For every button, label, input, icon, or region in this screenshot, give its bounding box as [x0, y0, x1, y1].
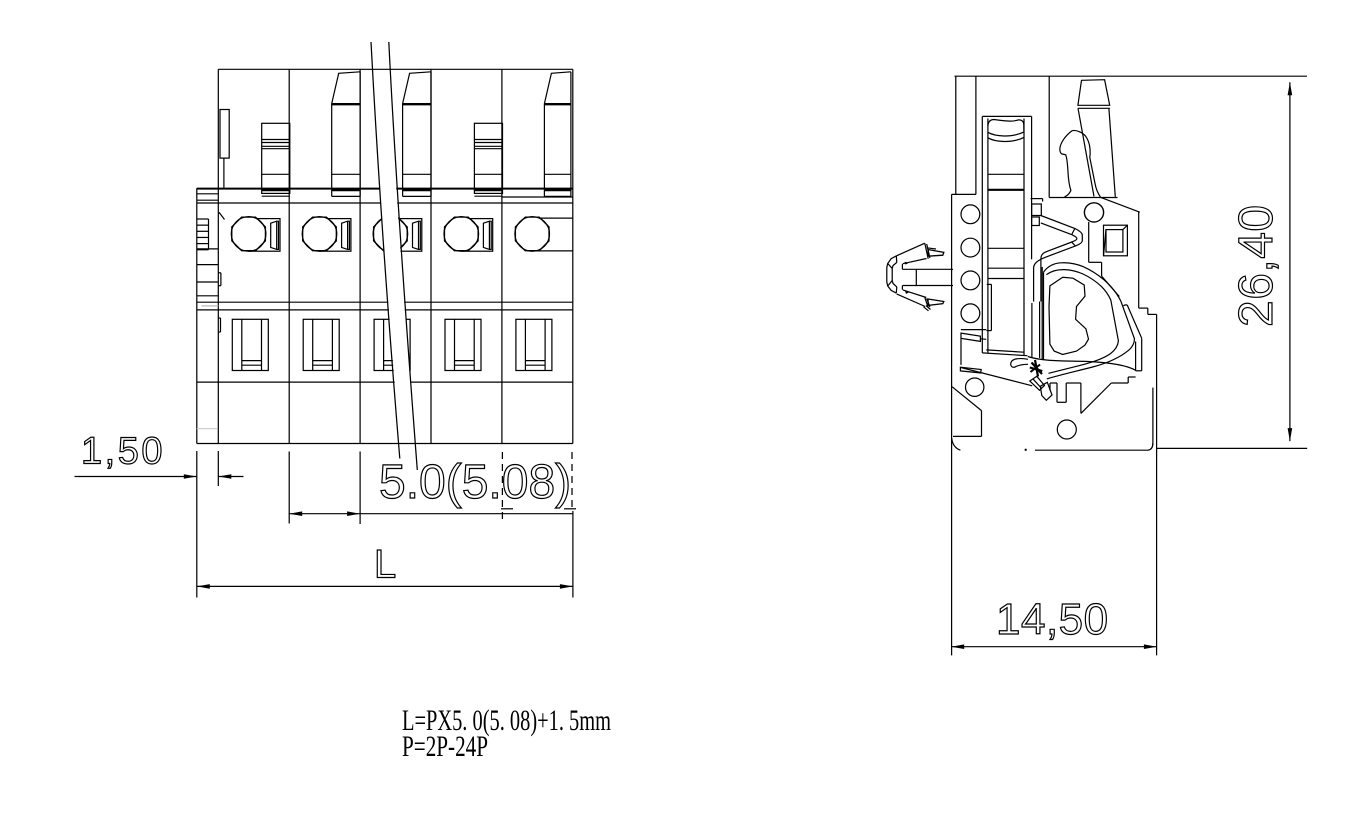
- svg-text:P=2P-24P: P=2P-24P: [402, 730, 488, 763]
- svg-text:L: L: [374, 543, 396, 587]
- svg-text:26,40: 26,40: [1230, 204, 1283, 327]
- svg-text:1,50: 1,50: [81, 431, 165, 473]
- svg-text:5.0(5.08): 5.0(5.08): [379, 456, 571, 509]
- svg-text:14,50: 14,50: [996, 595, 1109, 644]
